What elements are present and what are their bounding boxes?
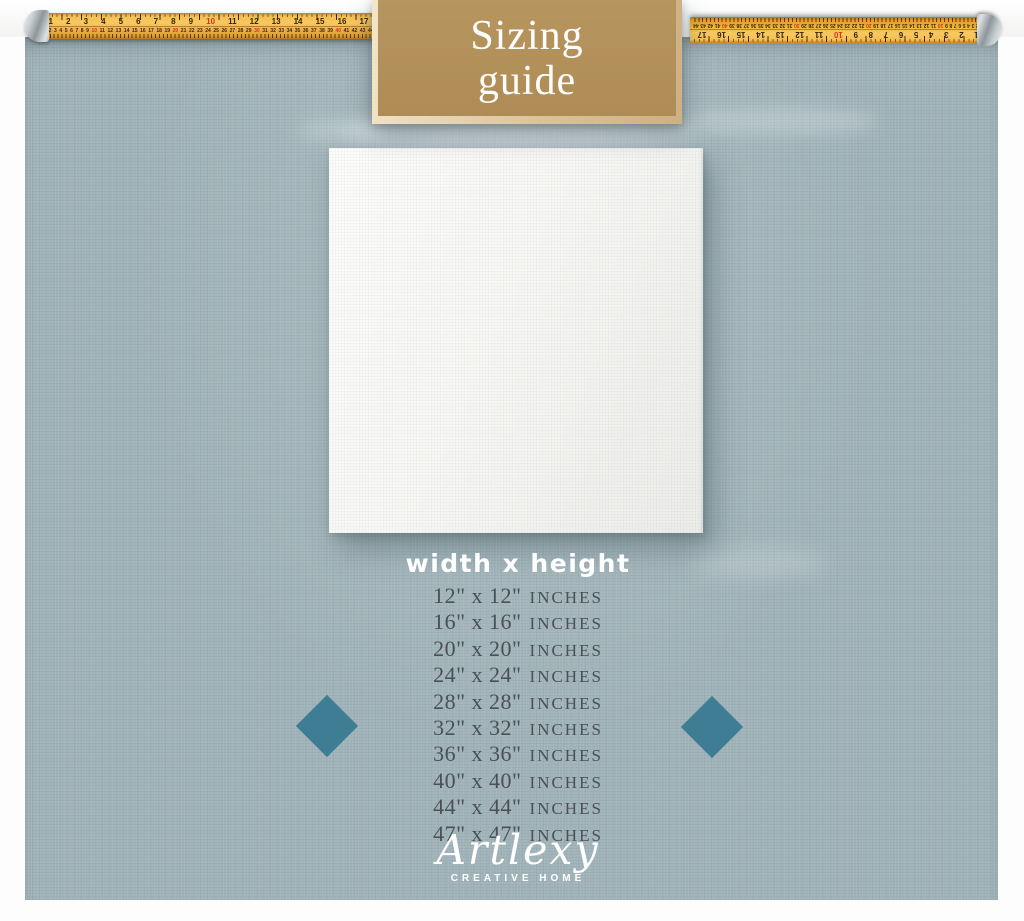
- tape-inch-number: 15: [316, 17, 325, 26]
- tape-inch-number: 11: [815, 30, 823, 39]
- size-dimensions: 32" x 32": [433, 715, 521, 740]
- tape-cm-number: 38: [736, 23, 742, 29]
- tape-cm-number: 29: [801, 23, 807, 29]
- tape-cm-number: 27: [816, 23, 822, 29]
- tape-cm-number: 3: [54, 28, 57, 34]
- tape-inch-number: 17: [698, 30, 707, 39]
- tape-cm-number: 19: [165, 28, 171, 34]
- tape-inch-number: 9: [189, 17, 193, 26]
- tape-cm-number: 41: [344, 28, 350, 34]
- size-dimensions: 44" x 44": [433, 794, 521, 819]
- tape-cm-number: 28: [238, 28, 244, 34]
- tape-inch-number: 16: [338, 17, 347, 26]
- tape-cm-number: 31: [787, 23, 793, 29]
- tape-cm-number: 22: [852, 23, 858, 29]
- tape-inch-number: 13: [272, 17, 281, 26]
- tape-cm-number: 9: [945, 23, 948, 29]
- tape-cm-number: 34: [287, 28, 293, 34]
- size-unit-label: INCHES: [530, 641, 603, 660]
- brand-logo-block: Artlexy CREATIVE HOME: [318, 828, 718, 884]
- tape-cm-number: 33: [278, 28, 284, 34]
- tape-cm-number: 21: [859, 23, 865, 29]
- size-unit-label: INCHES: [530, 720, 603, 739]
- tape-cm-number: 7: [954, 23, 957, 29]
- tape-cm-number: 37: [311, 28, 317, 34]
- title-line-1: Sizing: [470, 14, 583, 59]
- sizing-guide-graphic: 1234567891011121314151617123456789101112…: [0, 0, 1024, 921]
- title-line-2: guide: [478, 59, 576, 104]
- size-dimensions: 20" x 20": [433, 636, 521, 661]
- tape-cm-number: 34: [765, 23, 771, 29]
- tape-cm-number: 20: [173, 28, 179, 34]
- tape-cm-number: 42: [352, 28, 358, 34]
- tape-cm-number: 28: [808, 23, 814, 29]
- size-row: 36" x 36"INCHES: [318, 742, 718, 768]
- tape-cm-number: 39: [327, 28, 333, 34]
- tape-inch-number: 4: [929, 30, 933, 39]
- tape-cm-number: 11: [100, 28, 105, 34]
- tape-metal-tip-icon: [25, 10, 49, 42]
- tape-inch-number: 3: [84, 17, 88, 26]
- tape-midline: [690, 29, 986, 30]
- tape-cm-number: 32: [780, 23, 786, 29]
- tape-inch-number: 6: [136, 17, 140, 26]
- tape-cm-number: 5: [65, 28, 68, 34]
- tape-inch-number: 12: [795, 30, 804, 39]
- size-row: 12" x 12"INCHES: [318, 584, 718, 610]
- measuring-tape-left: 1234567891011121314151617123456789101112…: [40, 13, 377, 39]
- tape-cm-ticks: [692, 18, 984, 22]
- size-dimensions: 36" x 36": [433, 741, 521, 766]
- tape-cm-number: 8: [81, 28, 84, 34]
- tape-cm-number: 16: [895, 23, 901, 29]
- size-row: 40" x 40"INCHES: [318, 769, 718, 795]
- tape-cm-number: 16: [140, 28, 146, 34]
- size-unit-label: INCHES: [530, 799, 603, 818]
- tape-inch-number: 5: [119, 17, 123, 26]
- tape-cm-number: 3: [972, 23, 975, 29]
- tape-cm-number: 14: [124, 28, 130, 34]
- tape-cm-numbers: 1234567891011121314151617181920212223242…: [42, 27, 375, 34]
- tape-cm-number: 6: [958, 23, 961, 29]
- tape-inch-number: 17: [360, 17, 369, 26]
- tape-inch-number: 2: [959, 30, 963, 39]
- tape-cm-number: 15: [902, 23, 908, 29]
- size-row: 20" x 20"INCHES: [318, 637, 718, 663]
- size-row: 44" x 44"INCHES: [318, 795, 718, 821]
- tape-cm-number: 37: [744, 23, 750, 29]
- tape-inch-number: 10: [834, 30, 843, 39]
- size-dimensions: 12" x 12": [433, 583, 521, 608]
- tape-cm-number: 12: [924, 23, 930, 29]
- tape-cm-number: 11: [931, 23, 936, 29]
- tape-cm-number: 20: [866, 23, 872, 29]
- tape-cm-number: 13: [116, 28, 122, 34]
- tape-cm-number: 4: [967, 23, 970, 29]
- size-dimensions: 28" x 28": [433, 689, 521, 714]
- tape-cm-number: 24: [205, 28, 211, 34]
- tape-cm-number: 7: [75, 28, 78, 34]
- tape-cm-number: 40: [335, 28, 341, 34]
- tape-cm-number: 43: [360, 28, 366, 34]
- tape-cm-number: 2: [49, 28, 52, 34]
- sizing-guide-title-inner: Sizing guide: [378, 0, 676, 116]
- tape-cm-number: 14: [909, 23, 915, 29]
- size-dimensions: 16" x 16": [433, 609, 521, 634]
- tape-cm-number: 31: [262, 28, 268, 34]
- tape-inch-number: 7: [884, 30, 888, 39]
- size-row: 16" x 16"INCHES: [318, 610, 718, 636]
- tape-cm-number: 44: [693, 23, 699, 29]
- tape-inch-number: 14: [294, 17, 303, 26]
- tape-cm-number: 12: [108, 28, 114, 34]
- tape-inch-number: 16: [717, 30, 726, 39]
- tape-cm-number: 15: [132, 28, 138, 34]
- size-row: 28" x 28"INCHES: [318, 690, 718, 716]
- tape-inch-number: 6: [899, 30, 903, 39]
- tape-inch-number: 8: [869, 30, 873, 39]
- tape-cm-number: 19: [873, 23, 879, 29]
- tape-cm-number: 17: [148, 28, 154, 34]
- tape-cm-number: 17: [888, 23, 894, 29]
- tape-inch-number: 10: [206, 17, 215, 26]
- tape-cm-number: 23: [844, 23, 850, 29]
- tape-inch-number: 5: [914, 30, 918, 39]
- width-height-label: width x height: [316, 549, 720, 578]
- tape-cm-number: 25: [213, 28, 219, 34]
- tape-cm-number: 35: [758, 23, 764, 29]
- blank-canvas-mockup: [329, 148, 703, 533]
- tape-inch-numbers: 1234567891011121314151617: [692, 30, 984, 40]
- tape-cm-number: 39: [729, 23, 735, 29]
- tape-inch-number: 2: [66, 17, 70, 26]
- brand-tagline: CREATIVE HOME: [318, 873, 718, 884]
- tape-inch-number: 12: [250, 17, 259, 26]
- tape-cm-number: 43: [700, 23, 706, 29]
- tape-cm-number: 8: [949, 23, 952, 29]
- size-row: 32" x 32"INCHES: [318, 716, 718, 742]
- tape-cm-number: 27: [230, 28, 236, 34]
- size-unit-label: INCHES: [530, 614, 603, 633]
- size-dimensions: 24" x 24": [433, 662, 521, 687]
- tape-cm-number: 29: [246, 28, 252, 34]
- tape-cm-number: 25: [830, 23, 836, 29]
- tape-cm-number: 30: [254, 28, 260, 34]
- measuring-tape-right: 1234567891011121314151617123456789101112…: [690, 17, 986, 43]
- tape-inch-number: 8: [171, 17, 175, 26]
- tape-cm-number: 36: [751, 23, 757, 29]
- sizing-guide-title-box: Sizing guide: [372, 0, 682, 124]
- tape-cm-number: 5: [963, 23, 966, 29]
- tape-cm-number: 18: [880, 23, 886, 29]
- tape-cm-number: 42: [708, 23, 714, 29]
- brand-logo: Artlexy: [318, 828, 718, 872]
- tape-cm-number: 41: [715, 23, 721, 29]
- tape-inch-number: 14: [756, 30, 765, 39]
- tape-cm-ticks: [42, 34, 375, 38]
- tape-cm-number: 9: [86, 28, 89, 34]
- tape-cm-number: 10: [938, 23, 944, 29]
- tape-inch-numbers: 1234567891011121314151617: [42, 16, 375, 26]
- tape-inch-number: 7: [154, 17, 158, 26]
- tape-cm-number: 13: [916, 23, 922, 29]
- size-unit-label: INCHES: [530, 667, 603, 686]
- tape-cm-number: 24: [837, 23, 843, 29]
- tape-inch-number: 15: [737, 30, 746, 39]
- haze-wisp: [688, 108, 878, 134]
- size-unit-label: INCHES: [530, 746, 603, 765]
- size-list: 12" x 12"INCHES16" x 16"INCHES20" x 20"I…: [318, 584, 718, 848]
- size-unit-label: INCHES: [530, 773, 603, 792]
- tape-cm-number: 26: [823, 23, 829, 29]
- tape-inch-number: 13: [776, 30, 785, 39]
- tape-cm-number: 38: [319, 28, 325, 34]
- tape-cm-number: 40: [722, 23, 728, 29]
- size-dimensions: 40" x 40": [433, 768, 521, 793]
- tape-cm-number: 36: [303, 28, 309, 34]
- tape-cm-number: 33: [772, 23, 778, 29]
- tape-inch-number: 11: [228, 17, 236, 26]
- tape-inch-number: 3: [944, 30, 948, 39]
- tape-cm-number: 35: [295, 28, 301, 34]
- tape-inch-number: 4: [101, 17, 105, 26]
- tape-cm-number: 26: [222, 28, 228, 34]
- tape-cm-number: 18: [156, 28, 162, 34]
- tape-cm-number: 4: [59, 28, 62, 34]
- tape-cm-number: 23: [197, 28, 203, 34]
- tape-cm-number: 30: [794, 23, 800, 29]
- size-unit-label: INCHES: [530, 694, 603, 713]
- tape-cm-numbers: 1234567891011121314151617181920212223242…: [692, 22, 984, 29]
- size-row: 24" x 24"INCHES: [318, 663, 718, 689]
- tape-cm-number: 22: [189, 28, 195, 34]
- tape-inch-number: 9: [853, 30, 857, 39]
- tape-cm-number: 6: [70, 28, 73, 34]
- tape-cm-number: 21: [181, 28, 187, 34]
- tape-cm-number: 10: [92, 28, 98, 34]
- tape-cm-number: 32: [270, 28, 276, 34]
- size-unit-label: INCHES: [530, 588, 603, 607]
- tape-inch-number: 1: [49, 17, 53, 26]
